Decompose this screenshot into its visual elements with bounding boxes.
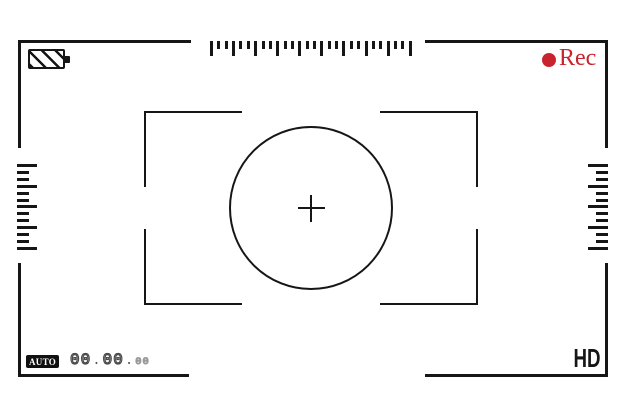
- ruler-tick: [306, 41, 309, 49]
- ruler-tick: [387, 41, 390, 56]
- auto-mode-badge[interactable]: AUTO: [26, 355, 59, 368]
- ruler-tick: [320, 41, 323, 56]
- focus-corner-top-left: [144, 111, 242, 187]
- ruler-tick: [588, 164, 608, 167]
- hd-quality-badge: HD: [574, 346, 601, 370]
- ruler-tick: [313, 41, 316, 49]
- ruler-tick: [17, 192, 29, 195]
- ruler-tick: [596, 240, 608, 243]
- ruler-tick: [298, 41, 301, 56]
- focus-corner-bottom-right: [380, 229, 478, 305]
- ruler-tick: [328, 41, 331, 49]
- ruler-tick: [596, 171, 608, 174]
- frame-bottom-right-segment: [425, 374, 608, 377]
- ruler-tick: [210, 41, 213, 56]
- right-exposure-scale: [586, 164, 608, 250]
- focus-frame: [144, 111, 478, 305]
- ruler-tick: [17, 171, 29, 174]
- ruler-tick: [17, 205, 37, 208]
- ruler-tick: [17, 233, 29, 236]
- ruler-tick: [17, 185, 37, 188]
- ruler-tick: [596, 178, 608, 181]
- ruler-tick: [262, 41, 265, 49]
- timecode-minutes: 00: [103, 352, 124, 369]
- ruler-tick: [365, 41, 368, 56]
- frame-bottom-left-segment: [18, 374, 189, 377]
- ruler-tick: [284, 41, 287, 49]
- ruler-tick: [342, 41, 345, 56]
- frame-top-left-segment: [18, 40, 191, 43]
- focus-corner-bottom-left: [144, 229, 242, 305]
- battery-terminal-icon: [65, 56, 70, 63]
- ruler-tick: [17, 226, 37, 229]
- ruler-tick: [247, 41, 250, 49]
- ruler-tick: [401, 41, 404, 49]
- battery-icon: [28, 49, 65, 69]
- ruler-tick: [291, 41, 294, 49]
- left-exposure-scale: [17, 164, 39, 250]
- ruler-tick: [596, 192, 608, 195]
- timecode-separator: .: [125, 353, 133, 369]
- frame-right-upper-segment: [605, 40, 608, 148]
- record-dot-icon: [542, 53, 556, 67]
- top-exposure-scale: [210, 41, 412, 57]
- ruler-tick: [596, 199, 608, 202]
- ruler-tick: [17, 199, 29, 202]
- frame-left-lower-segment: [18, 263, 21, 377]
- crosshair-icon: [310, 195, 312, 222]
- ruler-tick: [379, 41, 382, 49]
- ruler-tick: [596, 219, 608, 222]
- ruler-tick: [394, 41, 397, 49]
- rec-indicator[interactable]: Rec: [559, 47, 596, 69]
- frame-right-lower-segment: [605, 263, 608, 377]
- timecode-frames: 00: [135, 356, 150, 368]
- ruler-tick: [350, 41, 353, 49]
- ruler-tick: [239, 41, 242, 49]
- ruler-tick: [588, 247, 608, 250]
- ruler-tick: [269, 41, 272, 49]
- ruler-tick: [588, 185, 608, 188]
- ruler-tick: [372, 41, 375, 49]
- ruler-tick: [588, 226, 608, 229]
- ruler-tick: [232, 41, 235, 56]
- viewfinder-screen: Rec AUTO 00 . 00 . 00 HD: [0, 0, 626, 418]
- frame-top-right-segment: [425, 40, 608, 43]
- frame-left-upper-segment: [18, 40, 21, 148]
- ruler-tick: [17, 247, 37, 250]
- ruler-tick: [335, 41, 338, 49]
- ruler-tick: [596, 233, 608, 236]
- ruler-tick: [17, 164, 37, 167]
- ruler-tick: [17, 240, 29, 243]
- ruler-tick: [276, 41, 279, 56]
- ruler-tick: [17, 212, 29, 215]
- ruler-tick: [17, 219, 29, 222]
- ruler-tick: [409, 41, 412, 56]
- ruler-tick: [17, 178, 29, 181]
- timecode-display: 00 . 00 . 00: [70, 352, 150, 369]
- ruler-tick: [254, 41, 257, 56]
- timecode-hours: 00: [70, 352, 91, 369]
- ruler-tick: [357, 41, 360, 49]
- ruler-tick: [588, 205, 608, 208]
- ruler-tick: [217, 41, 220, 49]
- ruler-tick: [596, 212, 608, 215]
- ruler-tick: [225, 41, 228, 49]
- timecode-separator: .: [92, 353, 100, 369]
- focus-corner-top-right: [380, 111, 478, 187]
